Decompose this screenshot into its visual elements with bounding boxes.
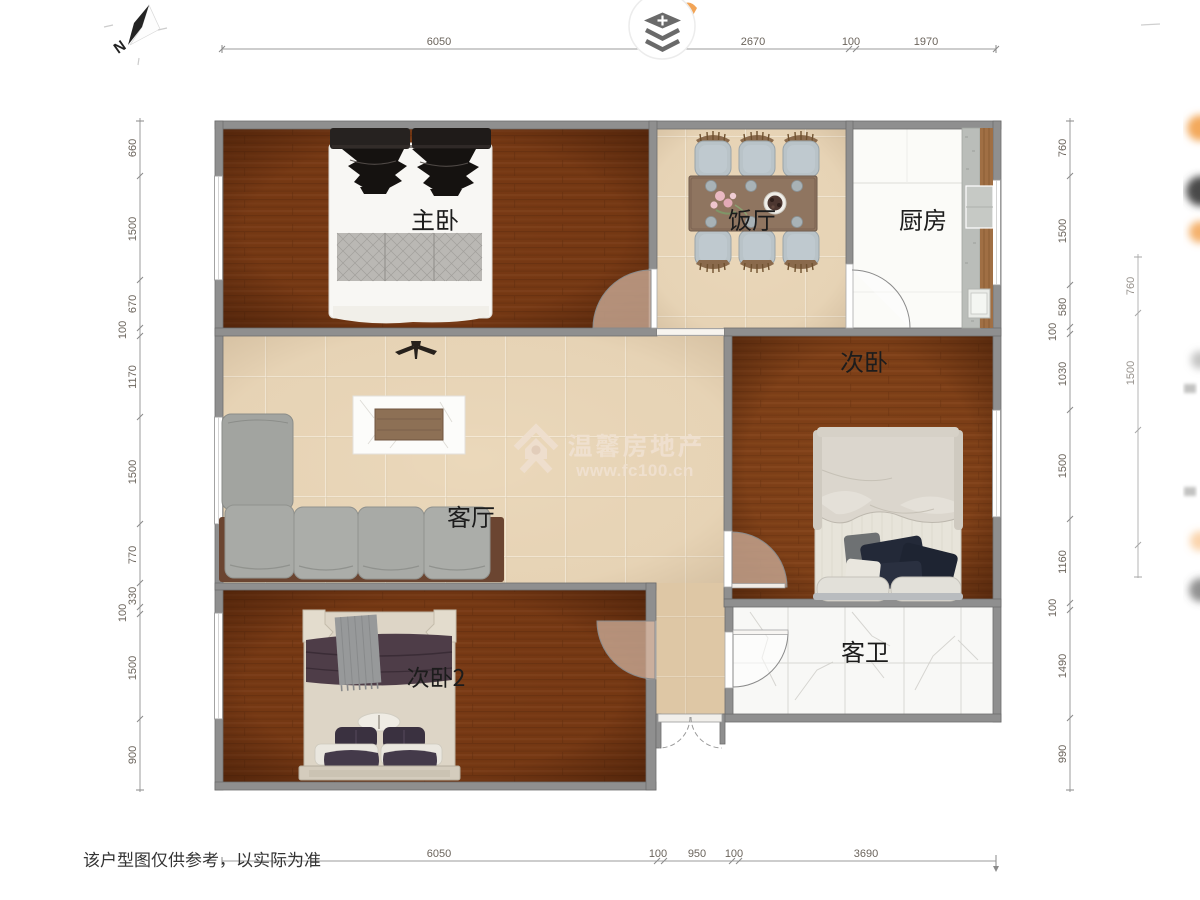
svg-text:100: 100 xyxy=(117,321,129,339)
svg-text:1970: 1970 xyxy=(914,36,938,48)
svg-text:990: 990 xyxy=(1057,745,1069,763)
svg-text:N: N xyxy=(111,37,130,57)
svg-text:1170: 1170 xyxy=(127,365,139,389)
svg-text:770: 770 xyxy=(127,546,139,564)
svg-text:1500: 1500 xyxy=(1057,454,1069,478)
svg-text:670: 670 xyxy=(127,295,139,313)
svg-text:660: 660 xyxy=(127,139,139,157)
svg-text:100: 100 xyxy=(117,604,129,622)
svg-text:1490: 1490 xyxy=(1057,654,1069,678)
svg-text:100: 100 xyxy=(1047,323,1059,341)
svg-text:100: 100 xyxy=(842,36,860,48)
svg-text:330: 330 xyxy=(127,587,139,605)
svg-text:3690: 3690 xyxy=(854,848,878,860)
svg-text:www.fc100.cn: www.fc100.cn xyxy=(575,461,694,480)
svg-text:1030: 1030 xyxy=(1057,362,1069,386)
svg-text:950: 950 xyxy=(688,848,706,860)
svg-text:900: 900 xyxy=(127,746,139,764)
svg-text:6050: 6050 xyxy=(427,848,451,860)
svg-text:1500: 1500 xyxy=(127,217,139,241)
svg-text:1500: 1500 xyxy=(1125,361,1137,385)
svg-text:580: 580 xyxy=(1057,298,1069,316)
svg-text:760: 760 xyxy=(1057,139,1069,157)
svg-text:1500: 1500 xyxy=(127,460,139,484)
svg-text:6050: 6050 xyxy=(427,36,451,48)
svg-text:760: 760 xyxy=(1125,277,1137,295)
svg-text:100: 100 xyxy=(1047,599,1059,617)
svg-text:100: 100 xyxy=(725,848,743,860)
svg-text:1500: 1500 xyxy=(127,656,139,680)
svg-text:1500: 1500 xyxy=(1057,219,1069,243)
svg-text:100: 100 xyxy=(649,848,667,860)
svg-text:1160: 1160 xyxy=(1057,550,1069,574)
svg-text:2670: 2670 xyxy=(741,36,765,48)
